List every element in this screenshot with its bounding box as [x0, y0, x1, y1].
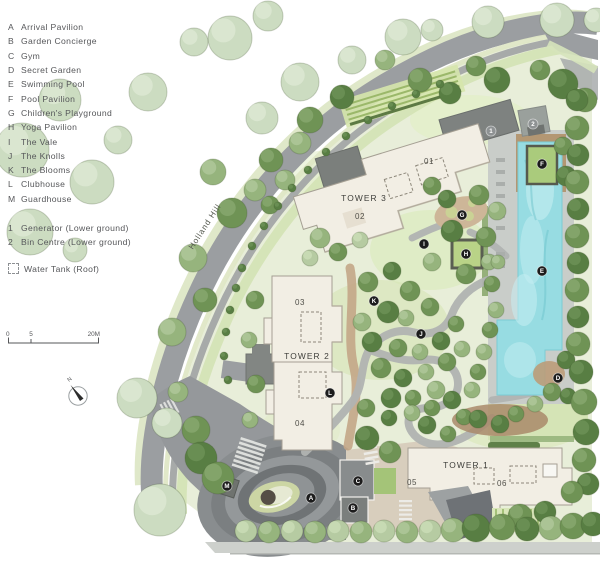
tower-label: TOWER 1	[443, 460, 489, 470]
legend-item-L: LClubhouse	[8, 177, 131, 191]
legend-key: L	[8, 179, 21, 189]
scale-tick-5: 5	[29, 331, 33, 338]
tree	[543, 383, 561, 401]
tree	[244, 179, 266, 201]
legend-key: B	[8, 36, 21, 46]
tree	[565, 278, 589, 302]
tree	[220, 352, 228, 360]
legend-key: A	[8, 22, 21, 32]
legend-label: Gym	[21, 51, 40, 61]
boundary-wall	[205, 542, 600, 555]
marker-letter: 2	[531, 121, 535, 128]
legend-item-H: HYoga Pavilion	[8, 120, 131, 134]
tree	[246, 291, 264, 309]
legend-label: Arrival Pavilion	[21, 22, 83, 32]
legend-key: J	[8, 151, 21, 161]
marker-letter: A	[309, 495, 314, 502]
tree	[418, 416, 436, 434]
tree	[247, 375, 265, 393]
tree	[389, 339, 407, 357]
marker-letter: C	[356, 478, 361, 485]
tree	[304, 521, 326, 543]
legend-item-M: MGuardhouse	[8, 192, 131, 206]
legend-item-B: BGarden Concierge	[8, 34, 131, 48]
legend-item-J: JThe Knolls	[8, 149, 131, 163]
tree	[394, 369, 412, 387]
tree	[488, 302, 504, 318]
legend-label: The Vale	[21, 137, 58, 147]
tree	[456, 264, 476, 284]
tree	[281, 520, 303, 542]
unit-label: 04	[295, 419, 305, 428]
tree	[581, 512, 600, 536]
plan-marker-B: B	[348, 503, 358, 513]
marker-letter: F	[540, 161, 544, 168]
tree	[441, 518, 465, 542]
tree	[182, 416, 210, 444]
tree	[438, 190, 456, 208]
tree	[364, 116, 372, 124]
legend-numbered: 1Generator (Lower ground)2Bin Centre (Lo…	[8, 221, 131, 250]
tree	[373, 520, 395, 542]
tree	[491, 415, 509, 433]
tree	[418, 364, 434, 380]
tree	[288, 184, 296, 192]
tree	[482, 322, 498, 338]
tree	[539, 516, 563, 540]
marker-letter: E	[540, 268, 544, 275]
legend-key: 1	[8, 223, 21, 233]
tree	[412, 344, 428, 360]
tree	[342, 132, 350, 140]
legend-item-I: IThe Vale	[8, 134, 131, 148]
site-plan-canvas: Holland Hill TOWER 30102TOWER 20304TOWER…	[0, 0, 600, 566]
tree	[388, 102, 396, 110]
legend: AArrival PavilionBGarden ConciergeCGymDS…	[8, 20, 131, 276]
tree	[508, 406, 524, 422]
tree	[258, 521, 280, 543]
tree	[423, 177, 441, 195]
legend-label: Guardhouse	[21, 194, 72, 204]
tree	[352, 232, 368, 248]
legend-item-2: 2Bin Centre (Lower ground)	[8, 235, 131, 249]
tree	[476, 344, 492, 360]
plan-marker-D: D	[553, 373, 563, 383]
legend-label: Clubhouse	[21, 179, 65, 189]
tree	[302, 250, 318, 266]
tree	[405, 390, 421, 406]
tree	[530, 60, 550, 80]
tree	[289, 132, 311, 154]
legend-key: F	[8, 94, 21, 104]
tree	[129, 73, 167, 111]
north-compass: N	[67, 376, 88, 405]
tree	[488, 202, 506, 220]
plan-marker-K: K	[369, 296, 379, 306]
tree	[567, 252, 589, 274]
tower-label: TOWER 3	[341, 193, 387, 203]
tree	[489, 514, 515, 540]
tree	[443, 391, 461, 409]
marker-letter: L	[328, 390, 332, 397]
tree	[377, 301, 399, 323]
tree	[362, 332, 382, 352]
scale-tick-20m: 20M	[88, 331, 100, 338]
tree	[565, 116, 589, 140]
tree	[152, 408, 182, 438]
tree	[226, 306, 234, 314]
tree	[232, 284, 240, 292]
marker-letter: K	[372, 298, 377, 305]
tree	[242, 412, 258, 428]
tree	[338, 46, 366, 74]
legend-key: G	[8, 108, 21, 118]
unit-label: 05	[407, 478, 417, 487]
tree	[310, 228, 330, 248]
scale-bar: 0 5 20M	[6, 331, 100, 343]
marker-letter: B	[351, 505, 356, 512]
legend-key: K	[8, 165, 21, 175]
legend-label: Secret Garden	[21, 65, 81, 75]
tree	[327, 520, 349, 542]
tree	[381, 388, 401, 408]
plan-marker-I: I	[419, 239, 429, 249]
unit-label: 02	[355, 212, 365, 221]
water-tank-label: Water Tank (Roof)	[24, 264, 99, 274]
legend-label: Garden Concierge	[21, 36, 97, 46]
tree	[565, 170, 589, 194]
marker-letter: J	[419, 331, 423, 338]
tree	[448, 316, 464, 332]
tree	[297, 107, 323, 133]
tree	[208, 16, 252, 60]
tree	[246, 102, 278, 134]
tree	[527, 396, 543, 412]
tree	[565, 224, 589, 248]
legend-items: AArrival PavilionBGarden ConciergeCGymDS…	[8, 20, 131, 206]
legend-key: E	[8, 79, 21, 89]
tree	[436, 80, 444, 88]
tree	[470, 364, 486, 380]
tree	[357, 399, 375, 417]
tree	[355, 426, 379, 450]
legend-label: Yoga Pavilion	[21, 122, 77, 132]
tree	[440, 426, 456, 442]
legend-label: Children's Playground	[21, 108, 112, 118]
tree	[573, 419, 599, 445]
tree	[222, 328, 230, 336]
tree	[253, 1, 283, 31]
tree	[330, 85, 354, 109]
tree	[238, 264, 246, 272]
tree	[567, 198, 589, 220]
tree	[235, 520, 257, 542]
tree	[454, 341, 470, 357]
plan-marker-E: E	[537, 266, 547, 276]
marker-letter: D	[556, 375, 561, 382]
tree	[134, 484, 186, 536]
tree	[515, 517, 539, 541]
legend-item-A: AArrival Pavilion	[8, 20, 131, 34]
tree	[462, 514, 490, 542]
tree	[358, 272, 378, 292]
tree	[421, 19, 443, 41]
tree	[424, 400, 440, 416]
tree	[375, 50, 395, 70]
legend-label: Pool Pavilion	[21, 94, 75, 104]
tree	[408, 68, 432, 92]
tree	[180, 28, 208, 56]
tree	[423, 253, 441, 271]
tree	[484, 67, 510, 93]
tree	[260, 222, 268, 230]
tree	[168, 382, 188, 402]
tree	[567, 306, 589, 328]
legend-key: D	[8, 65, 21, 75]
plan-marker-A: A	[306, 493, 316, 503]
legend-label: Bin Centre (Lower ground)	[21, 237, 131, 247]
marker-letter: G	[460, 212, 465, 219]
legend-label: Generator (Lower ground)	[21, 223, 129, 233]
tree	[540, 3, 574, 37]
tree	[217, 198, 247, 228]
legend-label: Swimming Pool	[21, 79, 85, 89]
tree	[566, 89, 588, 111]
tree	[248, 242, 256, 250]
unit-label: 01	[424, 157, 434, 166]
tree	[464, 382, 480, 398]
tree	[329, 243, 347, 261]
tree	[274, 202, 282, 210]
legend-item-K: KThe Blooms	[8, 163, 131, 177]
plan-marker-C: C	[353, 476, 363, 486]
tree	[259, 148, 283, 172]
legend-item-D: DSecret Garden	[8, 63, 131, 77]
tree	[400, 281, 420, 301]
marker-letter: M	[224, 483, 229, 490]
tree	[350, 521, 372, 543]
tree	[484, 276, 500, 292]
plan-marker-2: 2	[528, 119, 538, 129]
marker-letter: I	[423, 241, 425, 248]
plan-marker-J: J	[416, 329, 426, 339]
unit-label: 06	[497, 479, 507, 488]
tree	[398, 310, 414, 326]
tree	[571, 389, 597, 415]
tree	[438, 353, 456, 371]
tree	[224, 376, 232, 384]
plan-marker-M: M	[222, 481, 232, 491]
legend-item-1: 1Generator (Lower ground)	[8, 221, 131, 235]
legend-key: I	[8, 137, 21, 147]
water-tank-icon	[8, 263, 19, 274]
plan-marker-H: H	[461, 249, 471, 259]
legend-label: The Blooms	[21, 165, 70, 175]
tree	[383, 262, 401, 280]
legend-key: H	[8, 122, 21, 132]
tree	[441, 220, 463, 242]
unit-label: 03	[295, 298, 305, 307]
tree	[469, 410, 487, 428]
legend-key: M	[8, 194, 21, 204]
tree	[385, 19, 421, 55]
tree	[569, 360, 593, 384]
tree	[353, 313, 371, 331]
tree	[412, 90, 420, 98]
plan-marker-F: F	[537, 159, 547, 169]
tree	[419, 520, 441, 542]
marker-letter: 1	[489, 128, 493, 135]
tree	[469, 185, 489, 205]
tree	[472, 6, 504, 38]
tree	[427, 381, 445, 399]
tree	[304, 166, 312, 174]
tree	[421, 298, 439, 316]
legend-item-G: GChildren's Playground	[8, 106, 131, 120]
plan-marker-1: 1	[486, 126, 496, 136]
tree	[396, 521, 418, 543]
tree	[404, 405, 420, 421]
tree	[476, 227, 496, 247]
tree	[158, 318, 186, 346]
plan-marker-G: G	[457, 210, 467, 220]
plan-marker-L: L	[325, 388, 335, 398]
tree	[572, 448, 596, 472]
tree	[566, 332, 590, 356]
tree	[381, 410, 397, 426]
tree	[379, 441, 401, 463]
tree	[117, 378, 157, 418]
tree	[322, 148, 330, 156]
tree	[200, 159, 226, 185]
legend-item-C: CGym	[8, 49, 131, 63]
legend-item-E: ESwimming Pool	[8, 77, 131, 91]
tree	[371, 358, 391, 378]
tree	[466, 56, 486, 76]
tower-label: TOWER 2	[284, 351, 330, 361]
tree	[567, 144, 589, 166]
tree	[561, 481, 583, 503]
tree	[491, 255, 505, 269]
scale-tick-0: 0	[6, 331, 10, 338]
legend-label: The Knolls	[21, 151, 65, 161]
marker-letter: H	[464, 251, 469, 258]
tree	[432, 332, 450, 350]
legend-key: C	[8, 51, 21, 61]
tree	[241, 332, 257, 348]
legend-water-tank: Water Tank (Roof)	[8, 261, 131, 275]
tree	[281, 63, 319, 101]
tree	[193, 288, 217, 312]
compass-north-label: N	[67, 376, 74, 383]
legend-item-F: FPool Pavilion	[8, 91, 131, 105]
legend-key: 2	[8, 237, 21, 247]
